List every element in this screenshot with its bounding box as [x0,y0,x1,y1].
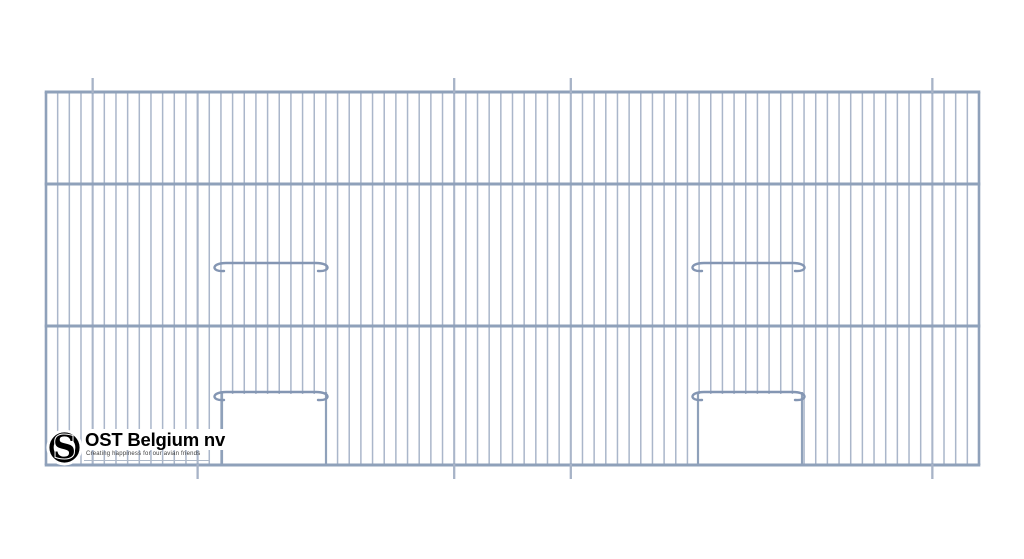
cage-grid [0,0,1024,559]
ost-emblem-icon: S [46,429,83,466]
vertical-wires [46,92,979,465]
brand-logo: S OST Belgium nv Creating happiness for … [46,429,227,466]
logo-text-block: OST Belgium nv Creating happiness for ou… [84,429,227,461]
logo-company-name: OST Belgium nv [84,429,227,450]
emblem-letter: S [53,429,76,466]
cage-front-drawing: S OST Belgium nv Creating happiness for … [0,0,1024,559]
logo-tagline: Creating happiness for our avian friends [84,450,210,461]
